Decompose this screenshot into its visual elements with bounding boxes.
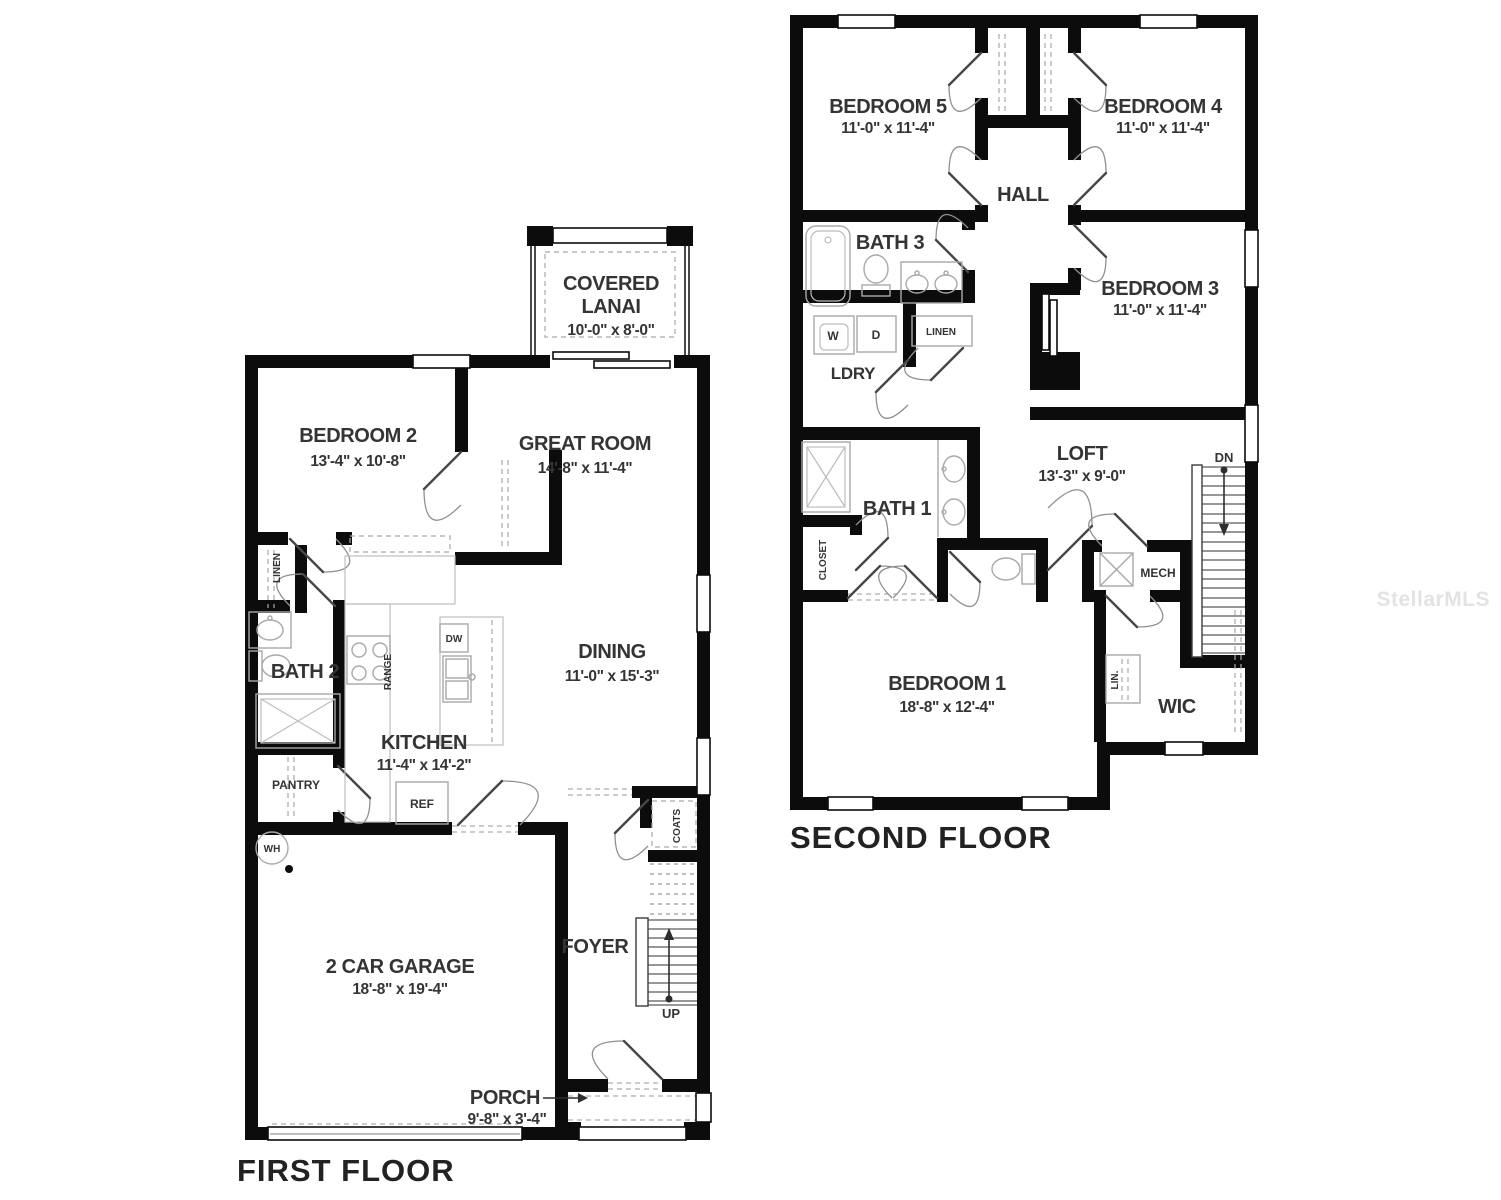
counter [345, 556, 455, 604]
second-floor-plan: BEDROOM 5 11'-0" x 11'-4" BEDROOM 4 11'-… [790, 15, 1258, 855]
toilet-icon [864, 255, 888, 283]
second-floor-labels: BEDROOM 5 11'-0" x 11'-4" BEDROOM 4 11'-… [790, 96, 1233, 855]
room-label-garage: 2 CAR GARAGE [326, 956, 475, 978]
window [1245, 405, 1258, 462]
room-dims-lanai: 10'-0" x 8'-0" [567, 322, 654, 339]
second-floor-title: SECOND FLOOR [790, 820, 1052, 855]
floorplan-canvas: BEDROOM 2 13'-4" x 10'-8" GREAT ROOM 14'… [0, 0, 1501, 1200]
room-dims-bedroom4: 11'-0" x 11'-4" [1116, 120, 1210, 137]
room-label-bedroom1: BEDROOM 1 [888, 673, 1006, 695]
label-washer: W [827, 329, 839, 343]
mech-fixtures [1100, 553, 1133, 586]
window [697, 575, 710, 632]
window [1165, 742, 1203, 755]
floorplan-svg: BEDROOM 2 13'-4" x 10'-8" GREAT ROOM 14'… [0, 0, 1501, 1200]
room-label-kitchen: KITCHEN [381, 732, 467, 754]
sliding-closet-door [1042, 294, 1049, 350]
room-dims-bedroom3: 11'-0" x 11'-4" [1113, 302, 1207, 319]
room-label-great-room: GREAT ROOM [519, 433, 651, 455]
first-floor-plan: BEDROOM 2 13'-4" x 10'-8" GREAT ROOM 14'… [237, 226, 711, 1188]
label-dishwasher: DW [446, 634, 463, 645]
up-arrow [664, 928, 674, 940]
room-label-dining: DINING [578, 641, 646, 663]
label-refrigerator: REF [410, 797, 434, 811]
label-mech: MECH [1140, 566, 1175, 580]
window [838, 15, 895, 28]
room-dims-dining: 11'-0" x 15'-3" [565, 668, 660, 685]
label-pantry: PANTRY [272, 778, 320, 792]
room-dims-porch: 9'-8" x 3'-4" [468, 1111, 547, 1128]
laundry-fixtures [814, 316, 896, 354]
window [413, 355, 470, 368]
label-closet: CLOSET [818, 540, 829, 581]
label-water-heater: WH [264, 844, 281, 855]
label-dryer: D [872, 328, 881, 342]
porch-structure [543, 1092, 711, 1140]
watermark: StellarMLS [1376, 588, 1490, 611]
toilet-tank-icon [1022, 554, 1035, 584]
room-label-wic: WIC [1158, 696, 1196, 718]
sliding-closet-door [1050, 300, 1057, 356]
window [1245, 230, 1258, 287]
room-label-loft: LOFT [1057, 443, 1108, 465]
room-label-bath3: BATH 3 [856, 232, 925, 254]
floor-drain-icon [285, 865, 293, 873]
sliding-door [553, 352, 629, 359]
label-range: RANGE [383, 654, 394, 690]
room-label-bedroom5: BEDROOM 5 [829, 96, 947, 118]
label-dn: DN [1215, 450, 1234, 465]
room-label-bedroom4: BEDROOM 4 [1104, 96, 1223, 118]
room-dims-bedroom2: 13'-4" x 10'-8" [310, 453, 405, 470]
room-dims-garage: 18'-8" x 19'-4" [352, 981, 447, 998]
porch-arrow [578, 1093, 588, 1103]
sliding-door [594, 361, 670, 368]
toilet-icon [992, 558, 1020, 580]
first-floor-title: FIRST FLOOR [237, 1153, 455, 1188]
kitchen-sink-icon [443, 656, 471, 702]
porch-step [579, 1127, 686, 1140]
room-label-lanai-2: LANAI [581, 296, 640, 318]
window [1140, 15, 1197, 28]
counter [345, 604, 390, 822]
stairs-down [1192, 465, 1245, 657]
room-label-bedroom2: BEDROOM 2 [299, 425, 417, 447]
room-label-lanai-1: COVERED [563, 273, 659, 295]
label-linen2: LINEN [926, 327, 956, 338]
down-arrow [1219, 524, 1229, 536]
room-dims-loft: 13'-3" x 9'-0" [1038, 468, 1125, 485]
room-dims-great-room: 14'-8" x 11'-4" [538, 460, 633, 477]
room-label-hall: HALL [997, 184, 1049, 206]
room-label-foyer: FOYER [562, 936, 630, 958]
label-lin: LIN. [1110, 670, 1121, 689]
room-dims-bedroom1: 18'-8" x 12'-4" [899, 699, 994, 716]
label-linen-closet: LINEN [272, 553, 283, 583]
room-label-bedroom3: BEDROOM 3 [1101, 278, 1219, 300]
label-coats: COATS [672, 809, 683, 844]
window [697, 738, 710, 795]
label-up: UP [662, 1006, 680, 1021]
room-label-bath2: BATH 2 [271, 661, 340, 683]
room-dims-kitchen: 11'-4" x 14'-2" [377, 757, 472, 774]
stairs-up [636, 801, 697, 1006]
room-label-porch: PORCH [470, 1087, 540, 1109]
window [828, 797, 873, 810]
room-label-ldry: LDRY [831, 364, 876, 383]
window [1022, 797, 1068, 810]
sink-icon [257, 620, 283, 640]
room-dims-bedroom5: 11'-0" x 11'-4" [841, 120, 935, 137]
room-label-bath1: BATH 1 [863, 498, 932, 520]
